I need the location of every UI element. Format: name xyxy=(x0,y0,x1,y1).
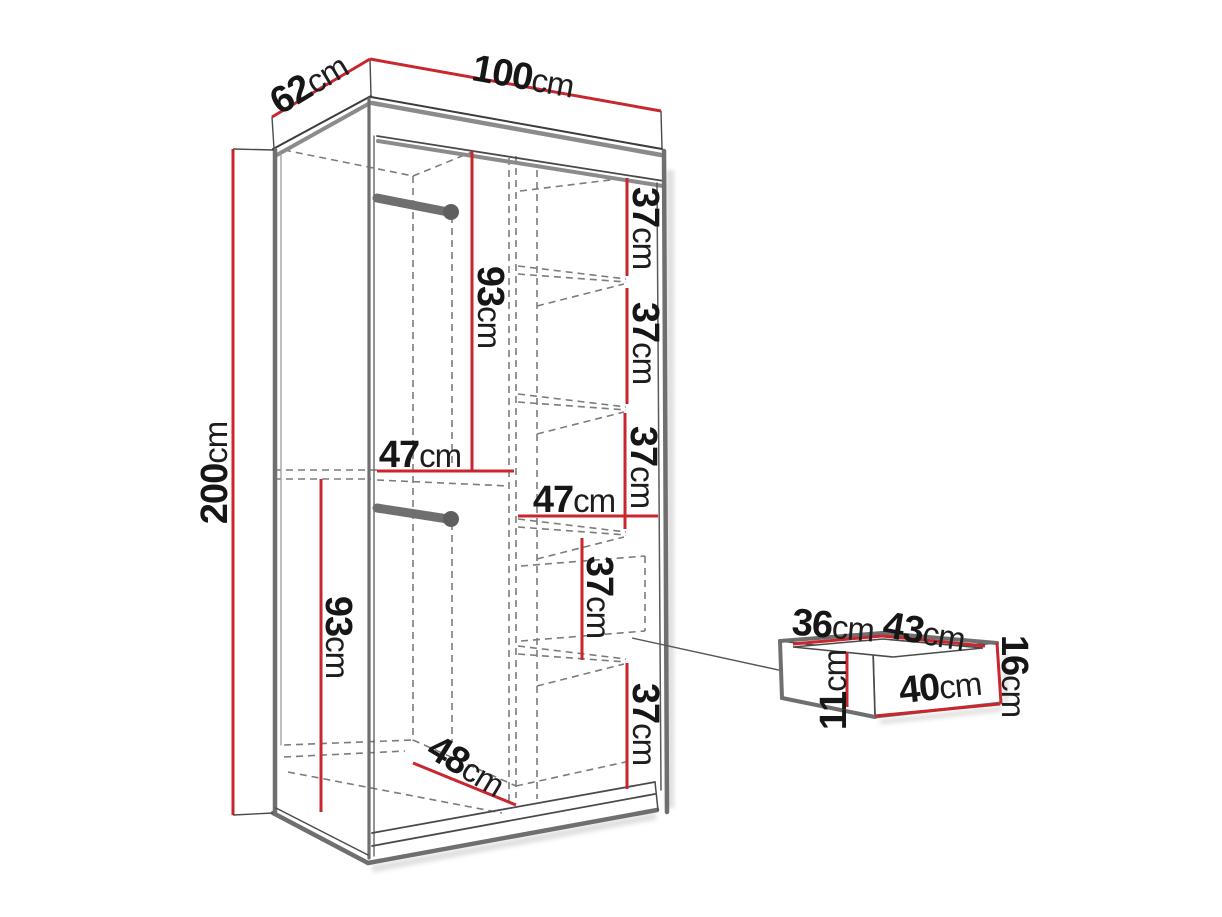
diagram-stage: 62cm 100cm 200cm 93cm 47cm 93cm 47cm 48c… xyxy=(0,0,1222,917)
dim-label-47cm-left-width: 47cm xyxy=(379,436,461,474)
upper-rod-end-cap xyxy=(443,204,459,220)
dim-label-37cm-shelf2: 37cm xyxy=(626,302,664,384)
dim-label-11cm-drawer-inner: 11cm xyxy=(815,650,853,730)
dim-label-37cm-shelf5: 37cm xyxy=(626,683,664,765)
lower-rod-end-cap xyxy=(443,511,459,527)
dim-label-200cm-height: 200cm xyxy=(196,422,234,524)
lower-hanging-rod xyxy=(377,508,448,519)
dim-label-37cm-shelf3: 37cm xyxy=(624,426,662,508)
dim-label-37cm-shelf1: 37cm xyxy=(626,187,664,269)
dim-label-16cm-drawer-height: 16cm xyxy=(995,635,1033,717)
dim-label-93cm-upper-rod: 93cm xyxy=(471,266,509,348)
hanging-rods xyxy=(377,198,459,527)
dim-label-37cm-shelf4: 37cm xyxy=(580,556,618,638)
dim-label-47cm-right-width: 47cm xyxy=(533,481,615,519)
wardrobe-diagram-canvas xyxy=(0,0,1222,917)
dim-label-36cm-drawer-depth: 36cm xyxy=(790,603,875,648)
dim-label-93cm-lower-rod: 93cm xyxy=(319,596,357,678)
